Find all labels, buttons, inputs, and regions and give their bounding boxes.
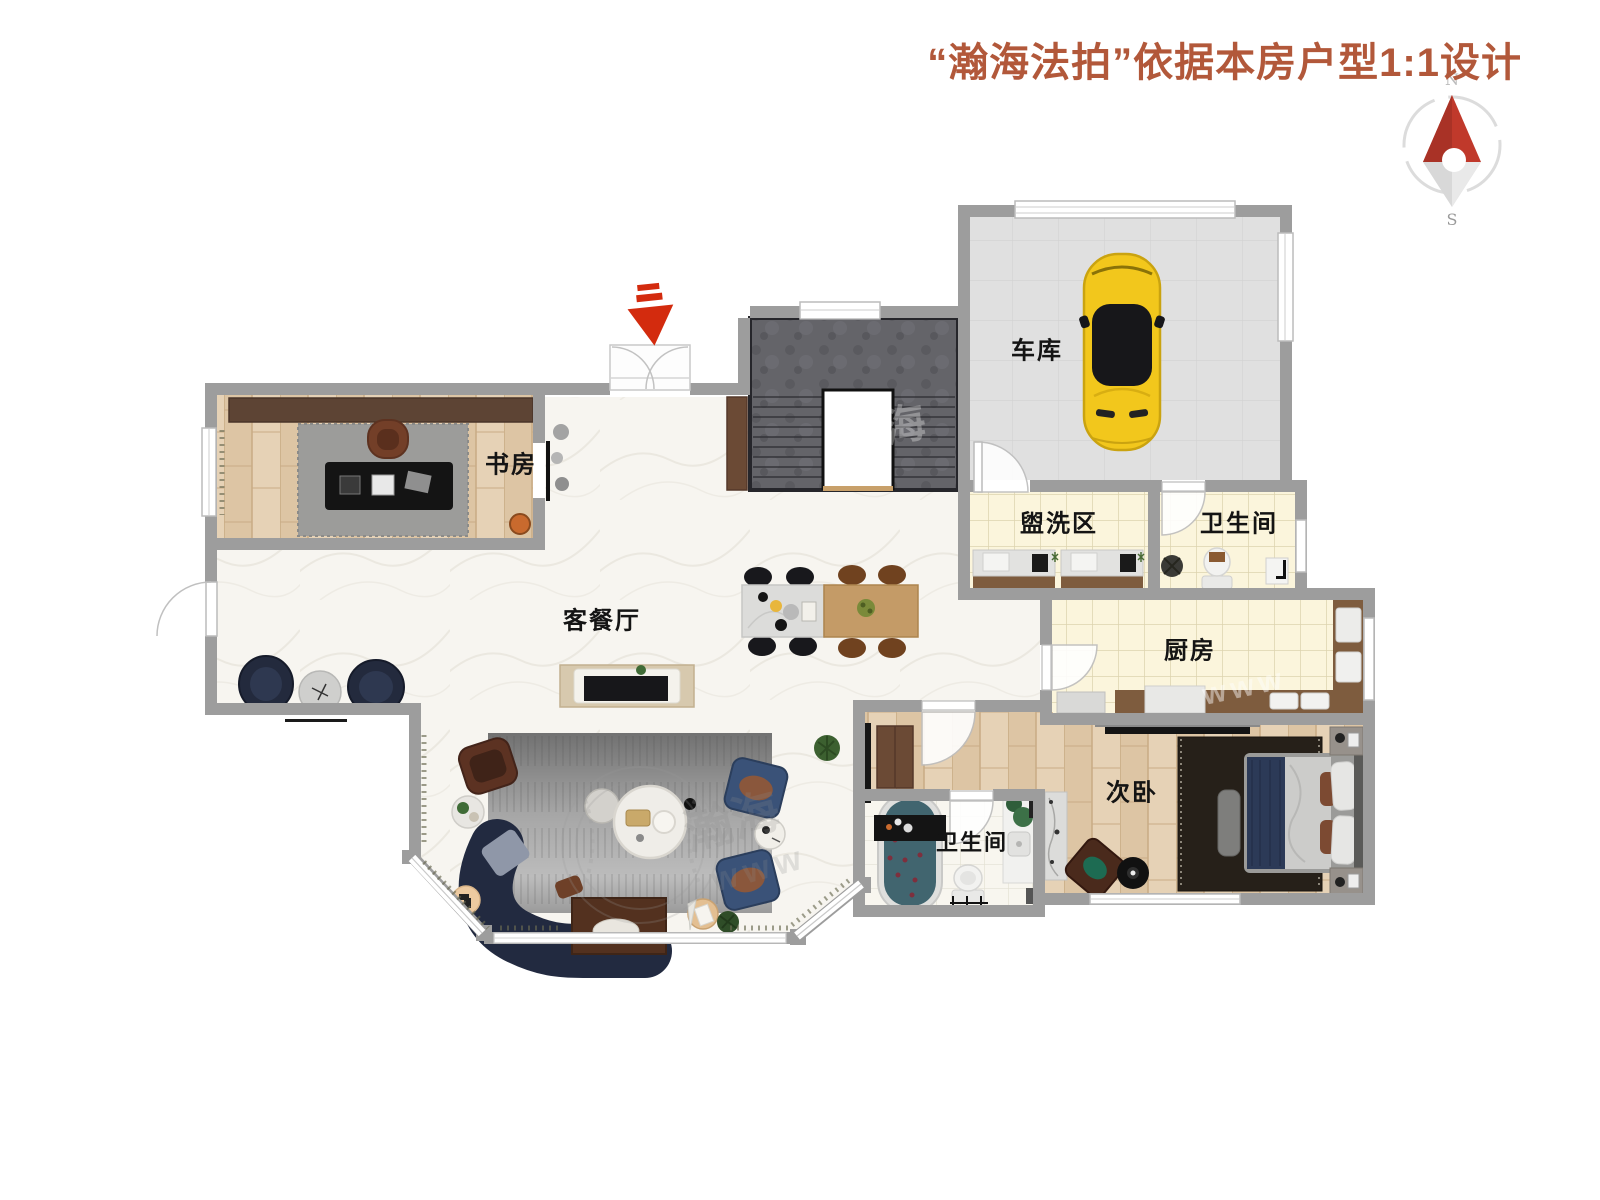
- entrance-double-door: [610, 345, 690, 390]
- garage-top-window: [1015, 201, 1235, 218]
- desk-book: [372, 475, 394, 495]
- desk-laptop: [340, 476, 360, 494]
- kitchen-island: [1145, 686, 1205, 713]
- floorplan-page: 瀚海 www 瀚海 www N S “瀚海法拍”依据本房户型1:1设计 书房 客…: [0, 0, 1600, 1200]
- dining-chair-black: [744, 567, 772, 587]
- room-label-study: 书房: [485, 445, 537, 480]
- tv-console: [560, 665, 694, 707]
- dining-chair-brown: [878, 565, 906, 585]
- bedroom-window: [1090, 894, 1240, 904]
- potted-plant-right: [814, 735, 840, 761]
- garage-car: [1078, 254, 1165, 450]
- table-item: [775, 619, 787, 631]
- bay-window-bottom: [494, 933, 786, 943]
- room-label-bathroom-lower: 卫生间: [936, 825, 1008, 857]
- page-title: “瀚海法拍”依据本房户型1:1设计: [927, 30, 1522, 88]
- entrance-arrow-icon: [625, 282, 677, 348]
- kitchen-cabinet: [1057, 692, 1105, 713]
- study-window: [202, 428, 216, 516]
- compass: N S: [1404, 70, 1500, 229]
- table-item: [758, 592, 768, 602]
- floorplan-drawing: 瀚海 www 瀚海 www N S: [0, 0, 1600, 1200]
- dining-chair-black: [789, 636, 817, 656]
- room-label-bathroom-top: 卫生间: [1200, 504, 1278, 539]
- stair-landing-edge: [823, 486, 893, 491]
- marble-screen: [1045, 792, 1067, 880]
- table-item: [770, 600, 782, 612]
- study-sliding-door: [546, 441, 550, 501]
- dining-chair-black: [748, 636, 776, 656]
- living-side-door: [157, 582, 217, 636]
- dining-chair-black: [786, 567, 814, 587]
- floor-drain: [1266, 558, 1288, 584]
- bed-headboard: [1354, 755, 1363, 871]
- lounge-armchair-left-cushion: [250, 667, 282, 701]
- room-label-garage: 车库: [1011, 331, 1063, 366]
- hall-cabinet: [727, 397, 747, 490]
- toilet-tray: [1209, 552, 1225, 562]
- stairwell: [727, 318, 958, 491]
- coffee-table-tray: [626, 810, 650, 826]
- bathroom-top-window: [1296, 520, 1306, 572]
- table-plant-bowl: [857, 599, 875, 617]
- study-stool: [510, 514, 530, 534]
- nightstand-top: [1330, 727, 1363, 755]
- dining-chair-brown: [878, 638, 906, 658]
- console-plant: [636, 665, 646, 675]
- kitchen-sink: [1301, 693, 1329, 709]
- kitchen-sink-right: [1336, 652, 1361, 682]
- toilet: [1202, 548, 1232, 589]
- room-label-bedroom: 次卧: [1106, 773, 1158, 808]
- bed-bench: [1218, 790, 1240, 856]
- room-label-wash-area: 盥洗区: [1020, 504, 1098, 539]
- dining-chair-brown: [838, 565, 866, 585]
- double-bed: [1244, 753, 1363, 873]
- plant-side-table: [452, 796, 484, 828]
- study-wall-cabinet: [229, 398, 533, 422]
- nightstand-bottom: [1330, 868, 1363, 896]
- kitchen-appliance: [1336, 608, 1361, 642]
- dining-chair-brown: [838, 638, 866, 658]
- room-label-kitchen: 厨房: [1164, 631, 1216, 666]
- bed-pillow-white: [1331, 815, 1357, 864]
- bedroom-tv: [1105, 727, 1250, 734]
- compass-south-label: S: [1447, 210, 1458, 229]
- kitchen-window: [1364, 618, 1374, 700]
- table-bag: [802, 602, 816, 621]
- stair-window: [800, 302, 880, 319]
- table-plant: [861, 603, 866, 608]
- coffee-table-cup: [636, 834, 644, 842]
- room-label-living-dining: 客餐厅: [563, 601, 641, 636]
- table-plate: [783, 604, 799, 620]
- potted-plant-bottom: [717, 911, 739, 933]
- table-plant: [868, 609, 873, 614]
- record-player: [1117, 857, 1149, 889]
- lounge-armchair-right-cushion: [359, 671, 393, 703]
- garage-right-window: [1278, 233, 1293, 341]
- bed-pillow-white: [1330, 761, 1357, 811]
- bathroom-plant: [1161, 555, 1183, 577]
- study-chair: [368, 420, 408, 458]
- wall-shelf-line: [285, 719, 347, 722]
